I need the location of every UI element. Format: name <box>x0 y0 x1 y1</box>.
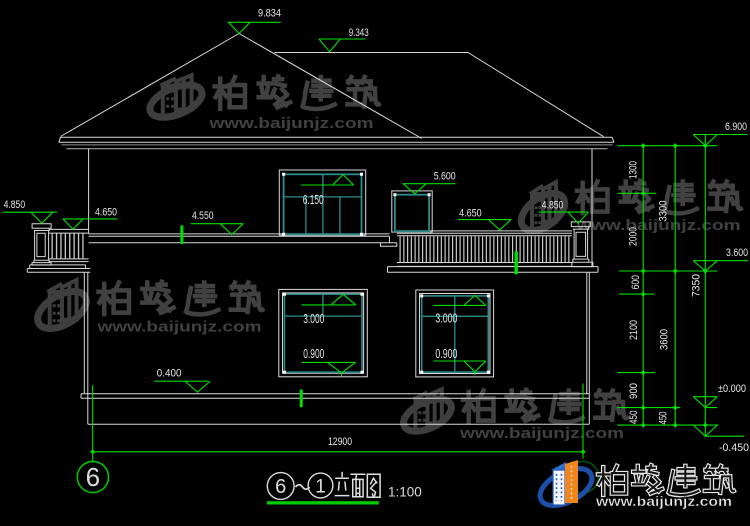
svg-text:0.400: 0.400 <box>157 368 182 380</box>
svg-text:www.baijunjz.com: www.baijunjz.com <box>96 320 261 336</box>
svg-text:7350: 7350 <box>691 274 703 297</box>
svg-text:0.900: 0.900 <box>303 347 324 361</box>
svg-text:4.850: 4.850 <box>542 200 564 212</box>
svg-text:5.600: 5.600 <box>434 171 456 183</box>
svg-text:3.600: 3.600 <box>726 247 748 259</box>
svg-text:600: 600 <box>630 275 642 290</box>
svg-text:1300: 1300 <box>628 161 640 179</box>
svg-text:450: 450 <box>658 412 670 425</box>
svg-text:www.baijunjz.com: www.baijunjz.com <box>208 116 373 132</box>
svg-text:±0.000: ±0.000 <box>718 383 746 395</box>
svg-text:-0.450: -0.450 <box>719 442 749 454</box>
svg-text:9.343: 9.343 <box>349 27 369 39</box>
svg-text:2000: 2000 <box>628 227 640 246</box>
svg-text:4.550: 4.550 <box>192 210 214 222</box>
svg-text:3.000: 3.000 <box>435 312 457 326</box>
svg-text:6.900: 6.900 <box>725 121 747 133</box>
svg-text:9.834: 9.834 <box>258 8 281 20</box>
svg-text:0.900: 0.900 <box>435 347 457 361</box>
svg-text:900: 900 <box>628 383 640 399</box>
svg-text:1:100: 1:100 <box>388 484 422 500</box>
svg-text:12900: 12900 <box>328 436 352 448</box>
svg-text:2100: 2100 <box>628 320 640 340</box>
svg-text:4.650: 4.650 <box>95 207 117 219</box>
svg-text:www.baijunjz.com: www.baijunjz.com <box>459 426 624 442</box>
svg-text:3.000: 3.000 <box>303 312 324 326</box>
svg-text:4.650: 4.650 <box>459 208 482 220</box>
svg-text:3300: 3300 <box>658 201 670 222</box>
svg-text:1: 1 <box>315 477 326 498</box>
svg-text:www.baijunjz.com: www.baijunjz.com <box>595 494 732 509</box>
svg-text:6: 6 <box>86 462 100 492</box>
svg-text:6: 6 <box>275 476 286 498</box>
svg-text:450: 450 <box>628 411 640 425</box>
svg-text:4.850: 4.850 <box>4 199 26 211</box>
svg-text:3600: 3600 <box>659 329 671 350</box>
svg-text:6.150: 6.150 <box>303 193 324 207</box>
